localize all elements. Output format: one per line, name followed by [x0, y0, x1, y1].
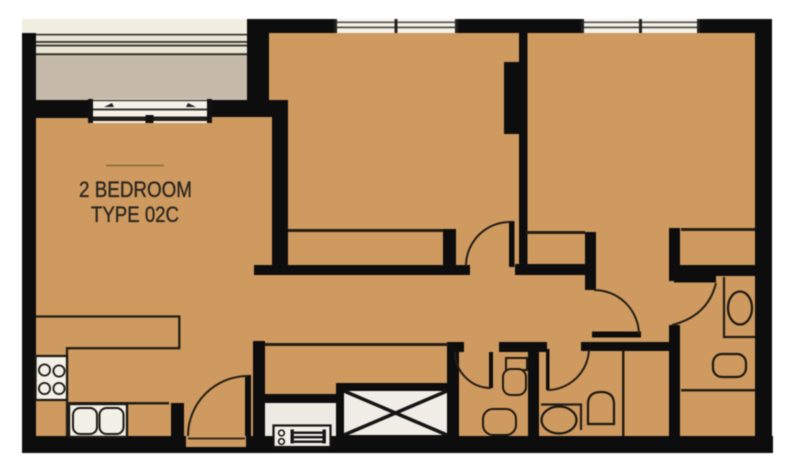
svg-text:2 BEDROOM: 2 BEDROOM [79, 177, 192, 202]
svg-text:TYPE 02C: TYPE 02C [91, 202, 179, 227]
